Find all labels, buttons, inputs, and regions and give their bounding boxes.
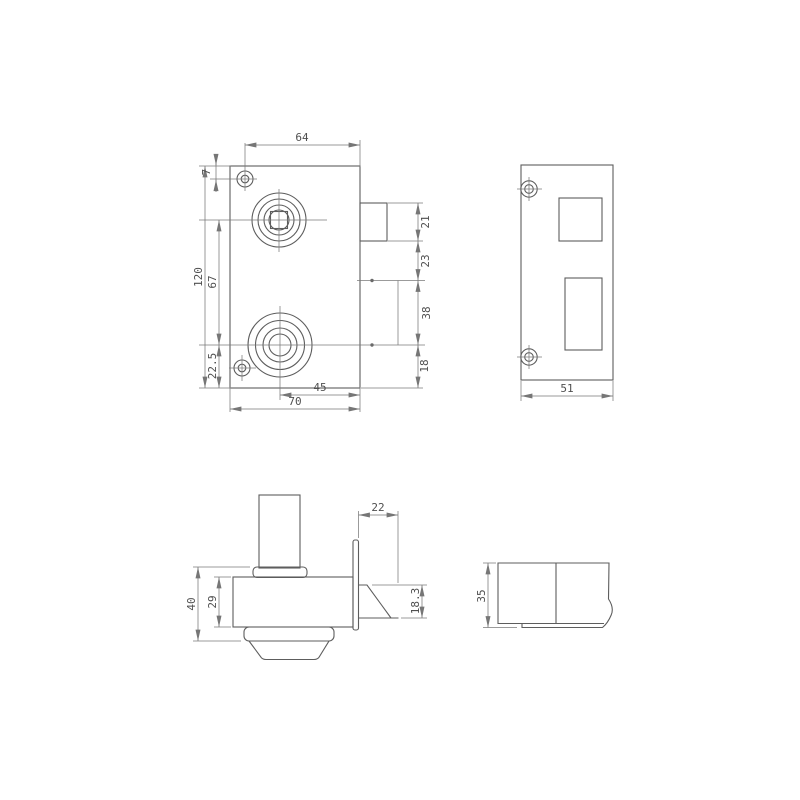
dim-front-latch-height: 21 (419, 215, 432, 228)
dim-front-latch-to-hub: 23 (419, 254, 432, 267)
dim-front-screw-offset: 7 (200, 169, 213, 176)
dim-front-cylinder-to-edge: 45 (313, 381, 326, 394)
dim-front-height: 120 (192, 267, 205, 287)
dim-strike-width: 51 (560, 382, 573, 395)
canvas-background (0, 0, 800, 800)
dim-front-top-width: 64 (295, 131, 309, 144)
dim-front-body-width: 70 (288, 395, 301, 408)
dim-front-cylinder-to-bottom: 22.5 (206, 353, 219, 380)
dim-front-spindle-to-cylinder: 67 (206, 275, 219, 288)
dim-front-hub-span: 38 (420, 306, 433, 319)
dim-strike-box-depth: 35 (475, 589, 488, 602)
technical-drawing: 64 7 120 67 22.5 45 70 21 23 38 18 (0, 0, 800, 800)
technical-drawing-page: 64 7 120 67 22.5 45 70 21 23 38 18 (0, 0, 800, 800)
dim-side-latch-protrusion: 22 (371, 501, 384, 514)
dim-front-hub-to-bottom: 18 (418, 359, 431, 372)
dim-side-latch-thickness: 18.3 (409, 588, 422, 615)
dim-side-case-depth: 29 (206, 595, 219, 608)
dim-side-overall-depth: 40 (185, 597, 198, 610)
